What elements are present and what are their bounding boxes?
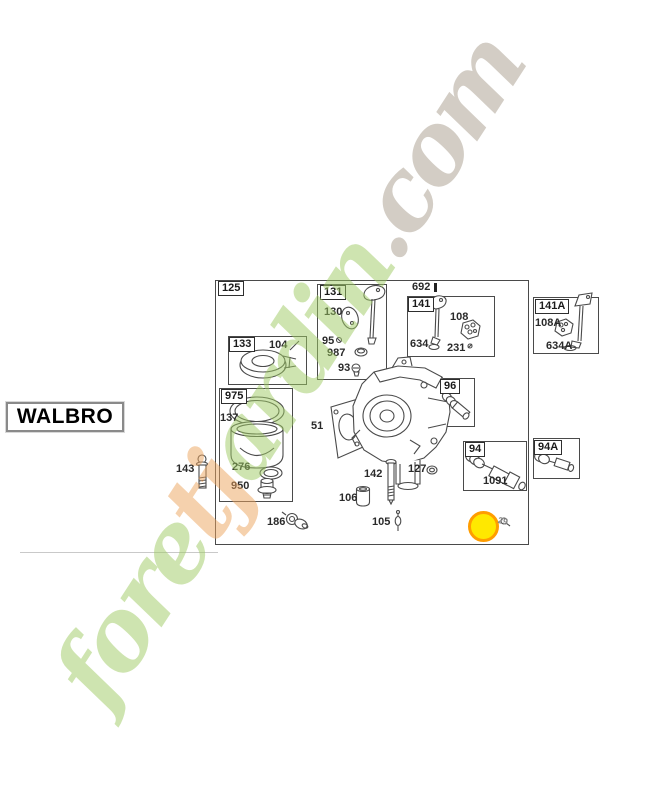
highlight-circle[interactable] — [468, 511, 499, 542]
part-label-137: 137 — [220, 412, 238, 424]
group-label-975: 975 — [221, 389, 247, 404]
brand-label: WALBRO — [6, 402, 124, 432]
bolt-143-drawing — [197, 455, 208, 488]
group-label-133: 133 — [229, 337, 255, 352]
part-label-634: 634 — [410, 338, 428, 350]
part-label-95: 95 — [322, 335, 334, 347]
part-label-692: 692 — [412, 281, 430, 293]
part-label-51: 51 — [311, 420, 323, 432]
group-label-141: 141 — [408, 297, 434, 312]
part-label-276: 276 — [232, 461, 250, 473]
page: WALBRO 125 131 141 141A 133 975 96 94 94… — [0, 0, 652, 800]
part-label-108: 108 — [450, 311, 468, 323]
parts-artwork — [0, 0, 652, 800]
part-label-143: 143 — [176, 463, 194, 475]
part-label-634A: 634A — [546, 340, 572, 352]
part-label-130: 130 — [324, 306, 342, 318]
part-label-105: 105 — [372, 516, 390, 528]
part-label-127: 127 — [408, 463, 426, 475]
part-label-93: 93 — [338, 362, 350, 374]
part-label-231: 231 — [447, 342, 465, 354]
seal-127-drawing — [427, 466, 437, 474]
part-label-142: 142 — [364, 468, 382, 480]
part-label-950: 950 — [231, 480, 249, 492]
brand-text: WALBRO — [17, 405, 113, 429]
group-label-141A: 141A — [535, 299, 569, 314]
part-label-1091: 1091 — [483, 475, 507, 487]
part-label-104: 104 — [269, 339, 287, 351]
group-label-94: 94 — [465, 442, 485, 457]
group-label-131: 131 — [320, 285, 346, 300]
needle-105-drawing — [395, 511, 401, 532]
pin-692-drawing — [434, 283, 437, 292]
group-label-125: 125 — [218, 281, 244, 296]
cup-106-drawing — [357, 487, 370, 507]
part-label-186: 186 — [267, 516, 285, 528]
screw-186-drawing — [282, 512, 309, 531]
group-label-96: 96 — [440, 379, 460, 394]
part-label-108A: 108A — [535, 317, 561, 329]
part-label-987: 987 — [327, 347, 345, 359]
group-label-94A: 94A — [534, 440, 562, 455]
part-label-106: 106 — [339, 492, 357, 504]
bolt-142-drawing — [386, 460, 396, 505]
